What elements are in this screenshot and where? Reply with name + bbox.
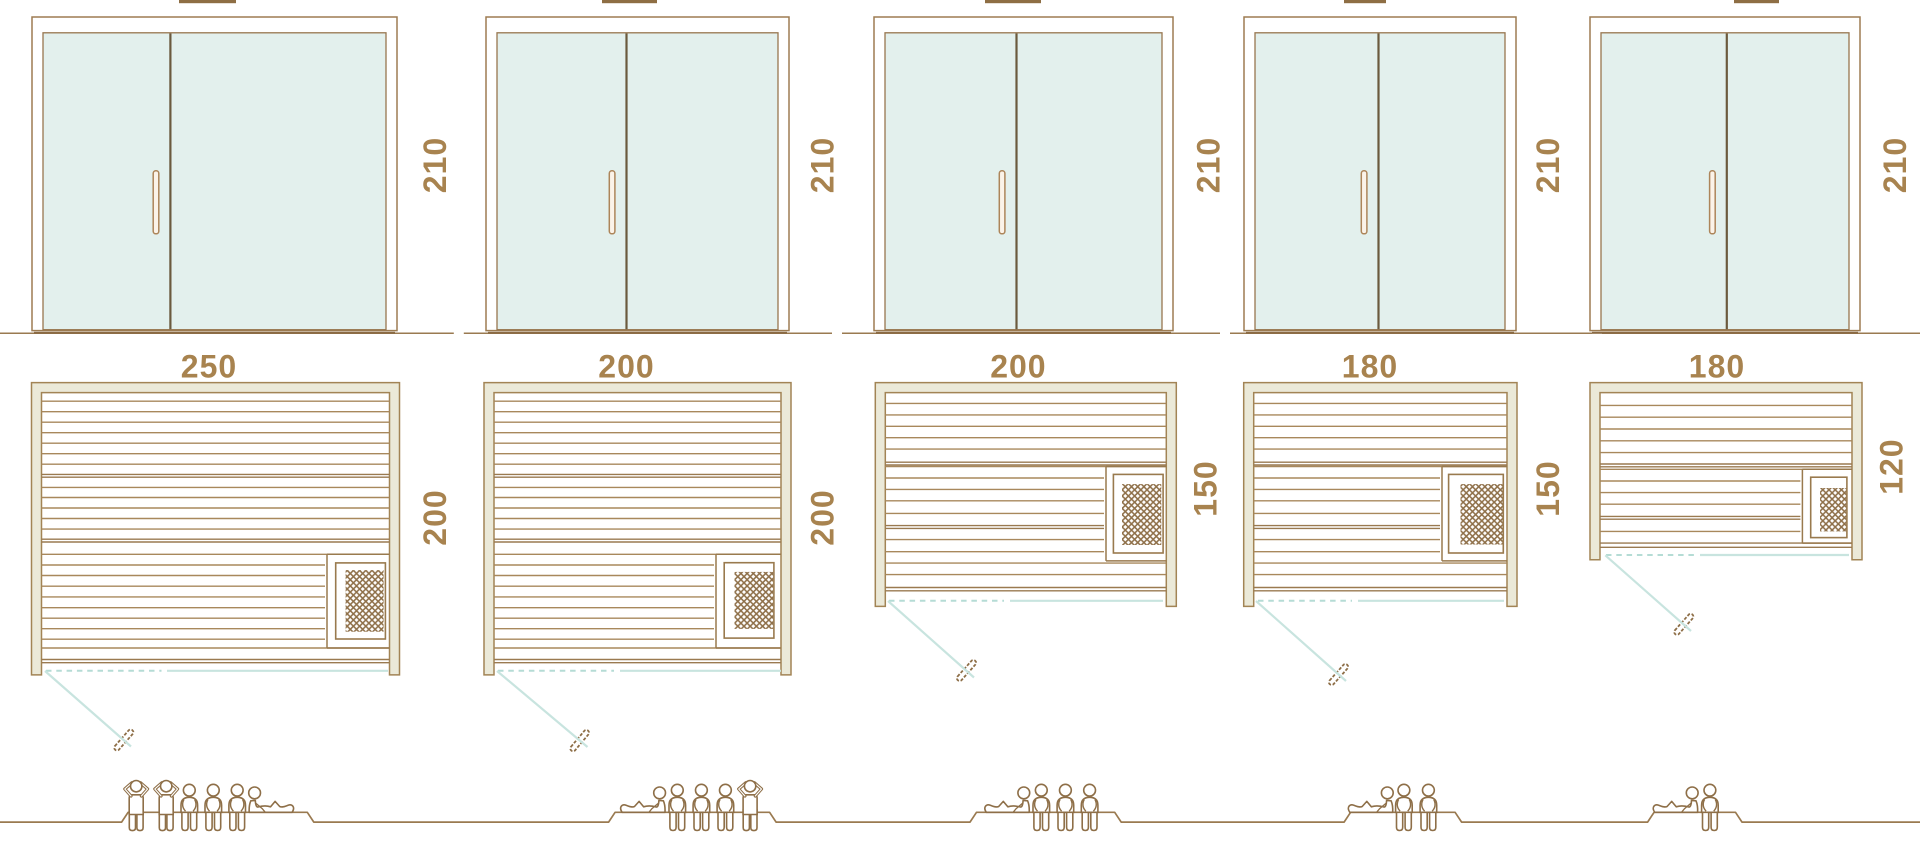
svg-text:210: 210 — [1877, 137, 1913, 193]
svg-text:200: 200 — [990, 348, 1046, 384]
svg-text:210: 210 — [417, 137, 453, 193]
svg-text:210: 210 — [805, 137, 841, 193]
svg-text:120: 120 — [1874, 438, 1910, 494]
svg-text:180: 180 — [1342, 348, 1398, 384]
svg-text:150: 150 — [1188, 460, 1224, 516]
svg-text:210: 210 — [1191, 137, 1227, 193]
svg-text:150: 150 — [1530, 460, 1566, 516]
svg-text:180: 180 — [1689, 348, 1745, 384]
svg-text:200: 200 — [805, 489, 841, 545]
svg-text:200: 200 — [417, 489, 453, 545]
svg-text:200: 200 — [598, 348, 654, 384]
svg-text:210: 210 — [1530, 137, 1566, 193]
svg-text:250: 250 — [181, 348, 237, 384]
